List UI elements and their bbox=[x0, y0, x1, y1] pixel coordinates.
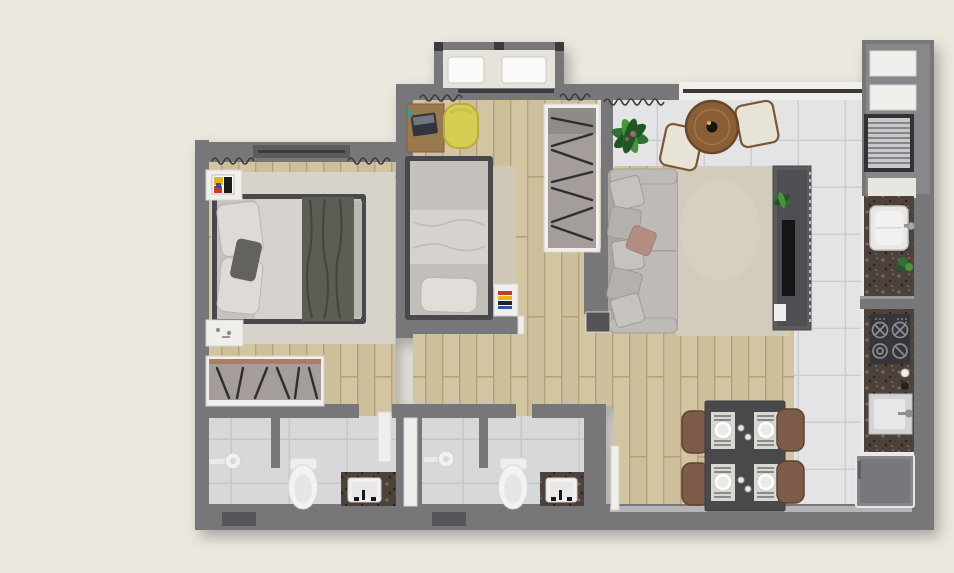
tv-card bbox=[774, 304, 786, 321]
ac-niche-post-1 bbox=[434, 42, 443, 51]
dining-chair-3 bbox=[777, 409, 804, 451]
place-setting bbox=[711, 412, 735, 449]
bedroom2-window-track bbox=[458, 89, 554, 93]
glass-railing bbox=[679, 82, 877, 100]
desk bbox=[407, 104, 444, 152]
pillow bbox=[420, 277, 477, 313]
bathroom2-north-wall-a bbox=[422, 404, 516, 418]
place-setting bbox=[754, 412, 778, 449]
counter-knob-white bbox=[901, 369, 909, 377]
toilet-icon bbox=[499, 458, 528, 509]
refrigerator bbox=[856, 455, 914, 507]
faucet-icon bbox=[559, 490, 562, 500]
hall-door-leaf bbox=[586, 312, 610, 332]
floor-plan bbox=[0, 0, 954, 573]
ac-niche-post-3 bbox=[555, 42, 564, 51]
single-bed bbox=[405, 156, 493, 320]
hall-wall-corner bbox=[584, 248, 612, 314]
bedroom2-door-jamb bbox=[518, 316, 524, 334]
bathroom1-door-leaf bbox=[378, 412, 391, 462]
vanity-sink bbox=[540, 472, 584, 506]
place-setting bbox=[754, 464, 778, 501]
nightstand-bottom bbox=[206, 320, 243, 346]
bathroom2-door-leaf bbox=[404, 418, 417, 506]
laundry-tank bbox=[870, 206, 915, 250]
double-bed bbox=[212, 194, 366, 324]
service-window-2 bbox=[870, 85, 916, 110]
terrace-chair-right bbox=[734, 100, 779, 148]
counter-knob-black bbox=[901, 382, 909, 390]
threshold-1 bbox=[222, 512, 256, 526]
dining-chair-4 bbox=[777, 461, 804, 503]
hallway-door-jamb bbox=[611, 446, 619, 510]
kitchen bbox=[856, 196, 915, 507]
shower-divider-1 bbox=[271, 416, 280, 468]
service-area bbox=[862, 40, 934, 198]
cooktop bbox=[870, 314, 910, 364]
bed-sheet bbox=[255, 199, 307, 319]
laptop-icon bbox=[410, 112, 438, 136]
rug-texture bbox=[680, 180, 760, 280]
threshold-2 bbox=[432, 512, 466, 526]
folded-duvet bbox=[410, 210, 488, 266]
faucet-icon bbox=[362, 490, 365, 500]
bathroom2-east-wall bbox=[584, 404, 606, 506]
service-window-1 bbox=[870, 51, 916, 76]
doorway-floor-2 bbox=[516, 404, 534, 418]
service-sill bbox=[868, 178, 916, 198]
fridge-handle bbox=[858, 461, 861, 479]
bedroom1-window-track bbox=[258, 150, 345, 153]
wardrobe bbox=[206, 356, 324, 406]
shower-divider-2 bbox=[479, 416, 488, 468]
plant-flower bbox=[630, 131, 636, 137]
counter-divider-highlight bbox=[860, 296, 914, 299]
nightstand-top bbox=[206, 170, 242, 200]
bathroom2-north-wall-b bbox=[532, 404, 584, 418]
counter-edge bbox=[861, 196, 864, 456]
ac-niche-post-2 bbox=[494, 42, 504, 50]
wardrobe-rod bbox=[209, 359, 321, 364]
nightstand-books bbox=[494, 284, 518, 316]
sofa bbox=[606, 169, 678, 333]
tv-panel bbox=[772, 166, 811, 330]
glass-track bbox=[683, 89, 865, 93]
ac-unit-1 bbox=[448, 57, 484, 83]
east-wall bbox=[912, 196, 934, 514]
tv-screen bbox=[782, 220, 795, 296]
living-north-wall bbox=[591, 84, 681, 100]
ac-niche bbox=[434, 42, 564, 88]
sliding-closet bbox=[544, 104, 600, 252]
ac-unit-2 bbox=[502, 57, 546, 83]
round-table bbox=[686, 101, 738, 153]
vanity-sink bbox=[341, 472, 396, 506]
place-setting bbox=[711, 464, 735, 501]
yellow-desk-chair bbox=[444, 104, 478, 148]
kitchen-sink bbox=[869, 394, 913, 434]
toilet-icon bbox=[289, 458, 318, 509]
